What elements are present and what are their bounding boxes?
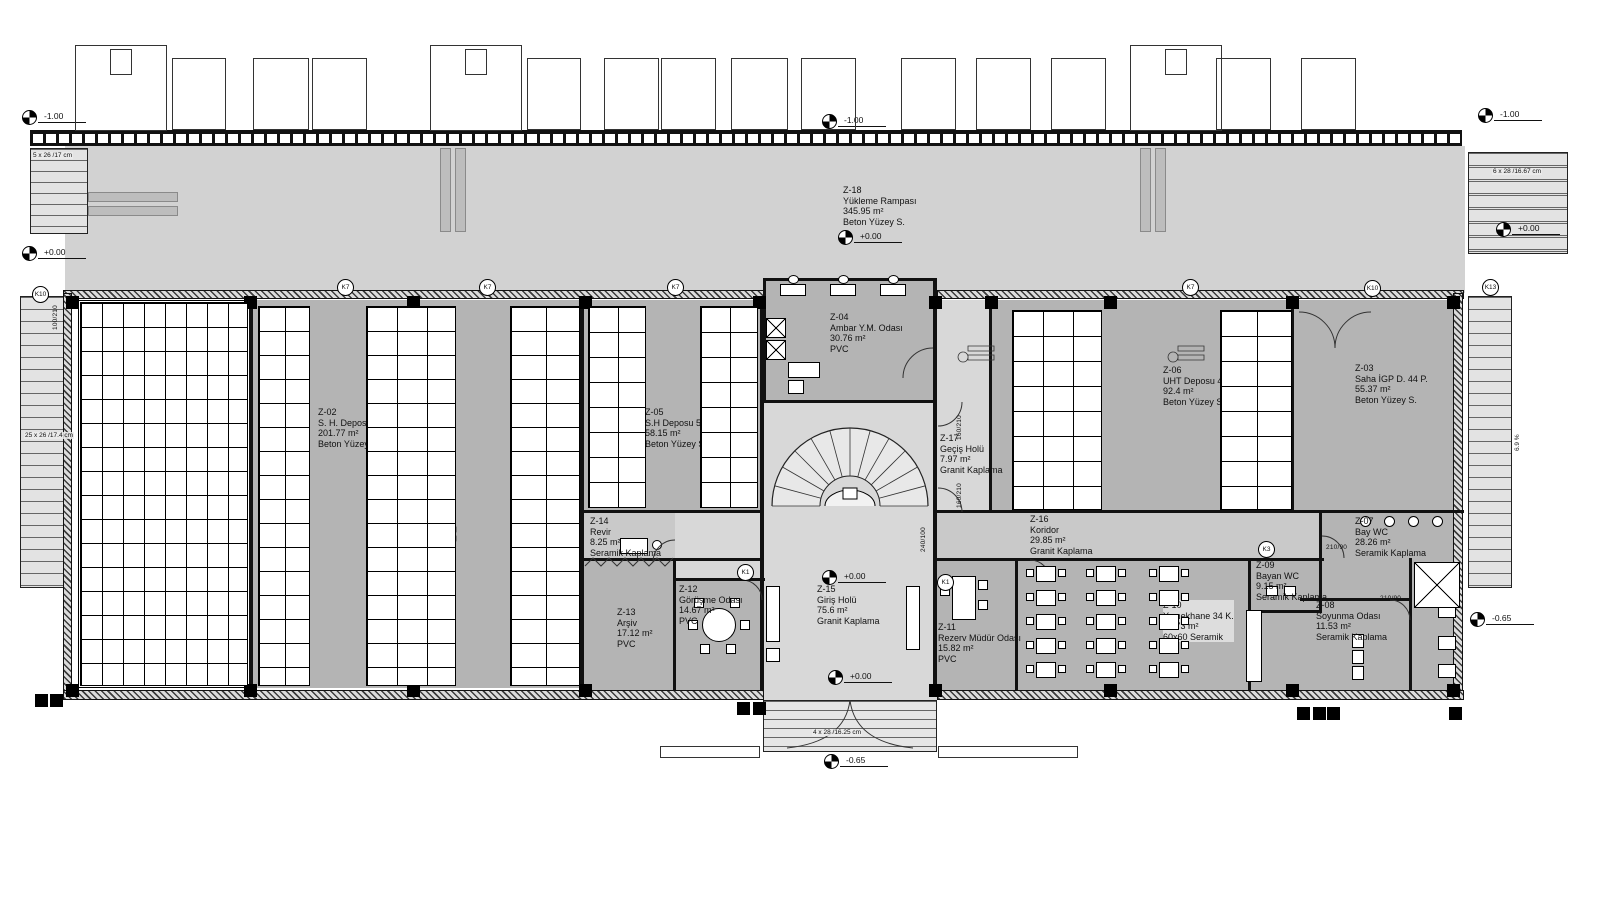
- dock-bay-outline: [1051, 58, 1106, 130]
- grid-bubble: K1: [937, 574, 954, 591]
- dining-table: [1096, 662, 1116, 678]
- dock-bay-outline: [312, 58, 367, 130]
- column: [66, 684, 79, 697]
- door-tag: 240/100: [920, 527, 927, 552]
- dining-table: [1096, 638, 1116, 654]
- dock-leveler: [455, 148, 466, 232]
- door-tag: 160/210: [956, 415, 963, 440]
- level-value: +0.00: [1512, 224, 1560, 233]
- column: [929, 684, 942, 697]
- chair: [888, 275, 899, 284]
- stair-note-left-side: 25 x 26 /17.4 cm: [24, 432, 74, 439]
- room-label-z08: Z-08Soyunma Odası11.53 m²Seramik Kaplama: [1316, 600, 1387, 642]
- level-marker: -1.00: [1478, 108, 1542, 123]
- level-icon: [838, 230, 853, 245]
- door-tag: 160/210: [956, 483, 963, 508]
- desk: [788, 380, 804, 394]
- dining-table: [1036, 566, 1056, 582]
- column: [1104, 296, 1117, 309]
- level-marker: +0.00: [822, 570, 886, 585]
- level-icon: [1496, 222, 1511, 237]
- dock-bay-outline: [1301, 58, 1356, 130]
- chair: [1149, 617, 1157, 625]
- storage-rack: [700, 306, 758, 508]
- dock-bay-outline: [901, 58, 956, 130]
- room-z17-area: [937, 300, 991, 512]
- wall: [1409, 558, 1412, 690]
- chair: [1058, 641, 1066, 649]
- dock-leveler: [1155, 148, 1166, 232]
- room-label-z17: Z-17Geçiş Holü7.97 m²Granit Kaplama: [940, 433, 1003, 475]
- dining-table: [1159, 590, 1179, 606]
- dock-bay-outline: [661, 58, 716, 130]
- chair: [1086, 593, 1094, 601]
- dining-table: [1036, 590, 1056, 606]
- grid-bubble: K10: [1364, 280, 1381, 297]
- desk: [780, 284, 806, 296]
- loading-ramp-area: [65, 146, 1465, 293]
- room-label-z13: Z-13Arşiv17.12 m²PVC: [617, 607, 653, 649]
- wall-left: [63, 293, 72, 698]
- chair: [1181, 665, 1189, 673]
- chair: [1058, 665, 1066, 673]
- level-value: +0.00: [844, 672, 892, 681]
- chair: [1149, 641, 1157, 649]
- chair: [1086, 569, 1094, 577]
- rotunda-stair-area: [763, 402, 937, 512]
- storage-rack: [1012, 310, 1102, 510]
- cabinet-icon: [766, 340, 786, 360]
- chair: [1086, 617, 1094, 625]
- right-side-stair: [1468, 296, 1512, 588]
- room-label-z11: Z-11Rezerv Müdür Odası15.82 m²PVC: [938, 622, 1021, 664]
- chair: [1118, 593, 1126, 601]
- room-label-z03: Z-03Saha İGP D. 44 P.55.37 m²Beton Yüzey…: [1355, 363, 1428, 405]
- entrance-stair: [763, 700, 937, 752]
- desk: [880, 284, 906, 296]
- dock-bay-outline: [1216, 58, 1271, 130]
- toilet-icon: [1438, 636, 1456, 650]
- dock-bay-outline: [731, 58, 788, 130]
- column: [1447, 296, 1460, 309]
- dining-table: [1159, 566, 1179, 582]
- level-value: -0.65: [840, 756, 888, 765]
- room-label-z07: Z-07Bay WC28.26 m²Seramik Kaplama: [1355, 516, 1426, 558]
- room-label-z14: Z-14Revir8.25 m²Seramik Kaplama: [590, 516, 661, 558]
- column: [737, 702, 750, 715]
- chair: [1026, 617, 1034, 625]
- wall: [989, 300, 992, 512]
- grid-bubble: K7: [667, 279, 684, 296]
- chair: [1181, 641, 1189, 649]
- grid-bubble: K7: [337, 279, 354, 296]
- chair: [1149, 593, 1157, 601]
- chair: [1118, 665, 1126, 673]
- wall: [583, 558, 763, 561]
- column: [1449, 707, 1462, 720]
- planter-left: [660, 746, 760, 758]
- dock-wall: [30, 130, 1462, 146]
- locker: [1352, 650, 1364, 664]
- storage-rack: [510, 306, 580, 686]
- column: [1327, 707, 1340, 720]
- room-label-z09: Z-09Bayan WC9.15 m²Seramik Kaplama: [1256, 560, 1327, 602]
- chair: [1181, 593, 1189, 601]
- wall: [249, 300, 253, 690]
- chair: [726, 644, 736, 654]
- chair: [1026, 569, 1034, 577]
- wall: [933, 280, 937, 690]
- level-value: +0.00: [854, 232, 902, 241]
- column: [66, 296, 79, 309]
- column: [35, 694, 48, 707]
- chair: [700, 644, 710, 654]
- stair-note-entrance: 4 x 28 /16.25 cm: [812, 729, 862, 736]
- dining-table: [1096, 590, 1116, 606]
- dining-table: [1159, 614, 1179, 630]
- column: [1286, 296, 1299, 309]
- chair: [1058, 569, 1066, 577]
- chair: [1086, 665, 1094, 673]
- dining-table: [1159, 662, 1179, 678]
- wall-bottom-right: [937, 690, 1464, 700]
- storage-rack: [588, 306, 646, 508]
- level-icon: [1470, 612, 1485, 627]
- grid-bubble: K7: [1182, 279, 1199, 296]
- dining-table: [1096, 566, 1116, 582]
- chair: [1149, 665, 1157, 673]
- column: [1286, 684, 1299, 697]
- level-value: +0.00: [838, 572, 886, 581]
- level-value: +0.00: [38, 248, 86, 257]
- chair: [1118, 641, 1126, 649]
- chair: [1026, 593, 1034, 601]
- storage-rack: [366, 306, 456, 686]
- dock-bay-outline: [527, 58, 581, 130]
- desk: [830, 284, 856, 296]
- door-tag: 210/90: [1326, 544, 1347, 551]
- cabinet-icon: [766, 318, 786, 338]
- wall: [763, 400, 937, 403]
- level-marker: +0.00: [838, 230, 902, 245]
- chair: [978, 600, 988, 610]
- chair: [1086, 641, 1094, 649]
- floor-plan-canvas: Z-18Yükleme Rampası345.95 m²Beton Yüzey …: [0, 0, 1612, 907]
- level-icon: [1478, 108, 1493, 123]
- room-label-z04: Z-04Ambar Y.M. Odası30.76 m²PVC: [830, 312, 903, 354]
- dining-table: [1036, 638, 1056, 654]
- toilet-icon: [1438, 664, 1456, 678]
- column: [1104, 684, 1117, 697]
- left-side-stair: [20, 296, 64, 588]
- room-label-z15: Z-15Giriş Holü75.6 m²Granit Kaplama: [817, 584, 880, 626]
- column: [579, 684, 592, 697]
- chair: [1181, 569, 1189, 577]
- level-marker: +0.00: [828, 670, 892, 685]
- chair: [1118, 569, 1126, 577]
- chair: [978, 580, 988, 590]
- chair: [1149, 569, 1157, 577]
- room-label-z16: Z-16Koridor29.85 m²Granit Kaplama: [1030, 514, 1093, 556]
- dock-bay-outline: [801, 58, 856, 130]
- chair: [1026, 641, 1034, 649]
- level-icon: [828, 670, 843, 685]
- column: [50, 694, 63, 707]
- dining-table: [1096, 614, 1116, 630]
- chair: [1118, 617, 1126, 625]
- dock-bay-inner: [110, 49, 132, 75]
- column: [929, 296, 942, 309]
- grid-bubble: K3: [1258, 541, 1275, 558]
- chair: [1058, 617, 1066, 625]
- level-icon: [822, 570, 837, 585]
- level-icon: [22, 246, 37, 261]
- side-table: [766, 648, 780, 662]
- wall: [937, 510, 1464, 513]
- desk: [788, 362, 820, 378]
- grid-bubble: K13: [1482, 279, 1499, 296]
- planter-right: [938, 746, 1078, 758]
- level-value: -1.00: [1494, 110, 1542, 119]
- left-ramp-stair: [30, 148, 88, 234]
- storage-rack: [1220, 310, 1292, 510]
- sink-icon: [1432, 516, 1443, 527]
- chair: [838, 275, 849, 284]
- room-label-z12: Z-12Görüşme Odası14.67 m²PVC: [679, 584, 743, 626]
- level-value: -0.65: [1486, 614, 1534, 623]
- grid-bubble: K7: [479, 279, 496, 296]
- level-marker: -0.65: [1470, 612, 1534, 627]
- storage-rack: [258, 306, 310, 686]
- grid-bubble: K1: [737, 564, 754, 581]
- column: [1447, 684, 1460, 697]
- dining-table: [1036, 662, 1056, 678]
- wall: [580, 300, 584, 690]
- room-label-z18: Z-18Yükleme Rampası345.95 m²Beton Yüzey …: [843, 185, 917, 227]
- dock-leveler: [1140, 148, 1151, 232]
- dock-bay-inner: [1165, 49, 1187, 75]
- dock-bay-outline: [253, 58, 309, 130]
- stair-note-left-ramp: 5 x 26 /17 cm: [32, 152, 73, 159]
- wall: [583, 510, 763, 513]
- level-icon: [22, 110, 37, 125]
- column: [1313, 707, 1326, 720]
- level-icon: [824, 754, 839, 769]
- dock-leveler: [88, 192, 178, 202]
- serving-counter: [1246, 610, 1262, 682]
- column: [1297, 707, 1310, 720]
- door-tag: 210/90: [1380, 595, 1401, 602]
- chair: [1026, 665, 1034, 673]
- column: [985, 296, 998, 309]
- level-marker: +0.00: [1496, 222, 1560, 237]
- chair: [788, 275, 799, 284]
- dock-leveler: [88, 206, 178, 216]
- dining-table: [1159, 638, 1179, 654]
- door-tag: 100/210: [52, 305, 59, 330]
- level-marker: +0.00: [22, 246, 86, 261]
- sofa: [906, 586, 920, 650]
- column: [753, 702, 766, 715]
- dining-table: [1036, 614, 1056, 630]
- dock-leveler: [440, 148, 451, 232]
- slope-note: 6.9 %: [1514, 433, 1521, 452]
- shaft-icon: [1414, 562, 1460, 608]
- dock-bay-outline: [172, 58, 226, 130]
- dock-bay-outline: [976, 58, 1031, 130]
- storage-rack: [80, 302, 248, 686]
- locker: [1352, 666, 1364, 680]
- dock-bay-outline: [604, 58, 659, 130]
- wall-top-right: [937, 290, 1464, 299]
- chair: [1058, 593, 1066, 601]
- chair: [1181, 617, 1189, 625]
- grid-bubble: K10: [32, 286, 49, 303]
- dock-bay-inner: [465, 49, 487, 75]
- sofa: [766, 586, 780, 642]
- desk: [952, 576, 976, 620]
- room-z03-area: [1293, 300, 1462, 512]
- level-marker: -0.65: [824, 754, 888, 769]
- stair-note-right-ramp: 6 x 28 /16.67 cm: [1492, 168, 1542, 175]
